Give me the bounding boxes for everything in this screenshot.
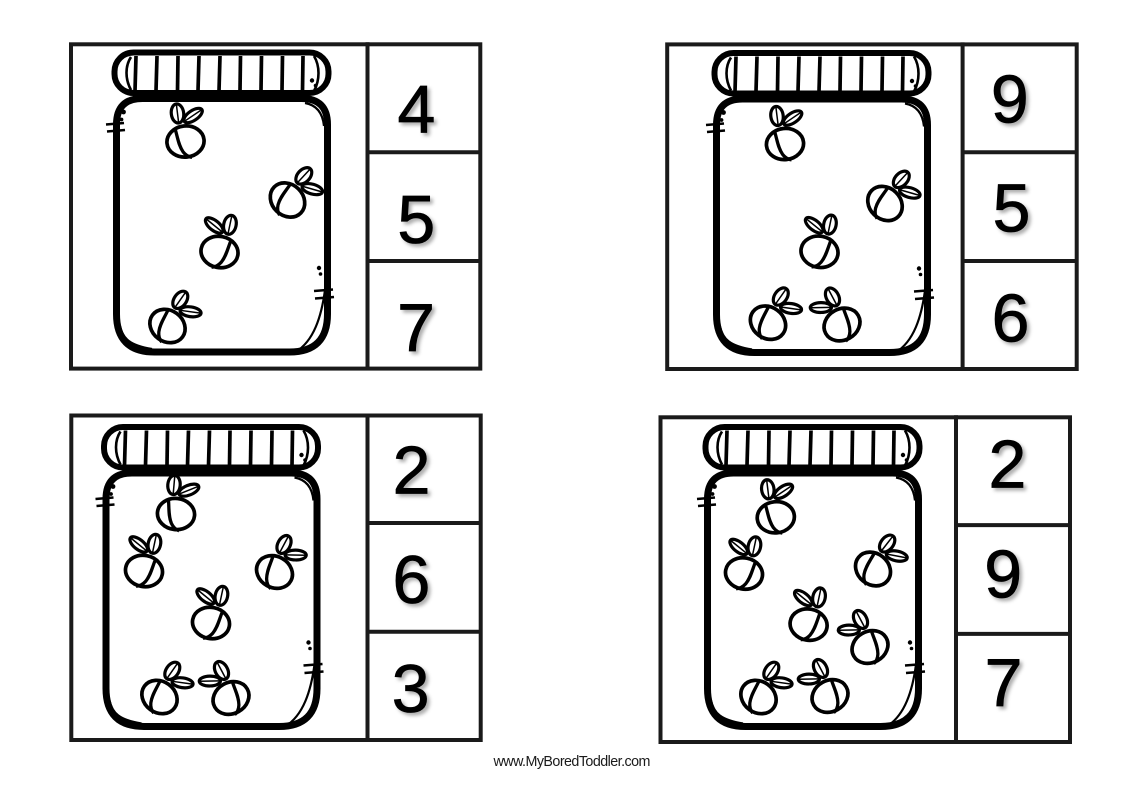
svg-text:6: 6 <box>992 280 1030 356</box>
svg-text:www.MyBoredToddler.com: www.MyBoredToddler.com <box>493 754 650 770</box>
svg-text:5: 5 <box>993 170 1031 246</box>
svg-text:3: 3 <box>392 651 430 727</box>
svg-text:7: 7 <box>985 645 1023 721</box>
svg-text:4: 4 <box>397 72 435 148</box>
svg-text:6: 6 <box>392 542 430 618</box>
svg-text:5: 5 <box>397 182 435 258</box>
svg-text:2: 2 <box>393 432 431 508</box>
svg-text:9: 9 <box>984 536 1022 612</box>
svg-text:7: 7 <box>397 290 435 366</box>
svg-text:9: 9 <box>991 62 1029 138</box>
svg-text:2: 2 <box>988 427 1026 503</box>
